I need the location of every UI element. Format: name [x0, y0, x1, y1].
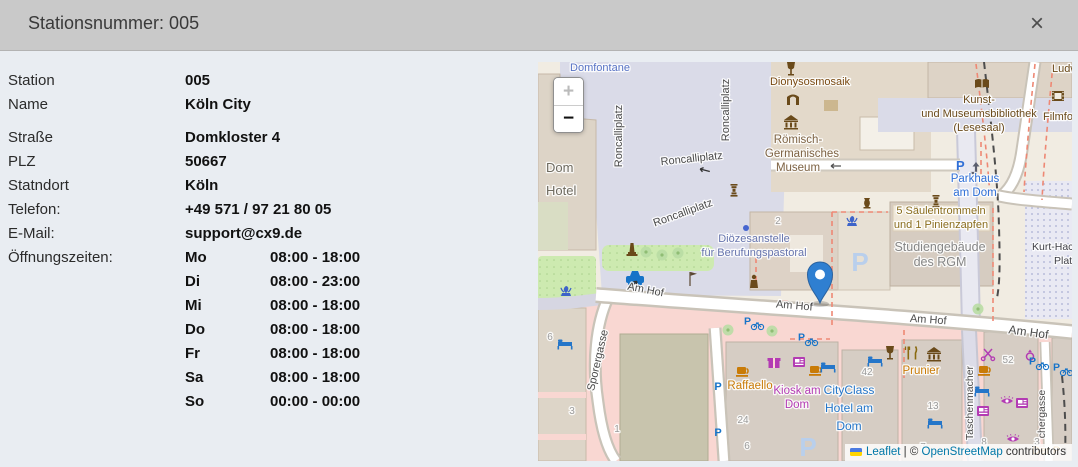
map-label: Kunst- — [963, 94, 995, 106]
detail-label: Straße — [8, 129, 185, 146]
hours-day: Fr — [185, 345, 270, 362]
detail-label: Station — [8, 72, 185, 89]
book-icon — [975, 79, 989, 88]
detail-row: PLZ 50667 — [0, 149, 532, 173]
map-label: 24 — [737, 415, 749, 426]
map-label: Studiengebäude — [894, 240, 985, 254]
opening-hours: Öffnungszeiten: Mo 08:00 - 18:00 Di 08:0… — [0, 245, 532, 413]
zoom-out-button[interactable]: − — [554, 105, 583, 132]
hours-row: So 00:00 - 00:00 — [185, 389, 360, 413]
detail-value: Köln — [185, 177, 218, 194]
map-label: Museum — [776, 162, 820, 174]
detail-value: Köln City — [185, 96, 251, 113]
map-label: Domfontane — [570, 62, 630, 74]
svg-text:P: P — [851, 247, 868, 277]
p-icon: P — [714, 427, 721, 439]
hours-time: 08:00 - 18:00 — [270, 369, 360, 386]
gift-icon — [768, 358, 781, 368]
film-icon — [1052, 91, 1064, 101]
hours-day: Mo — [185, 249, 270, 266]
map-label: Plat — [1054, 255, 1072, 267]
tree-icon — [657, 250, 668, 261]
domkloster-block — [620, 334, 708, 461]
svg-text:P: P — [1029, 356, 1036, 368]
map-zoom-control: + − — [553, 77, 584, 133]
hours-time: 08:00 - 18:00 — [270, 249, 360, 266]
detail-row: E-Mail: support@cx9.de — [0, 221, 532, 245]
map-label: des RGM — [914, 255, 967, 269]
map-canvas: PPPPPPPPP DomfontaneRoncalliplatzRoncall… — [538, 62, 1072, 461]
pbig-icon: P — [851, 247, 868, 277]
hours-day: Do — [185, 321, 270, 338]
svg-text:P: P — [714, 381, 721, 393]
map-container[interactable]: PPPPPPPPP DomfontaneRoncalliplatzRoncall… — [538, 62, 1072, 461]
dialog-title: Stationsnummer: 005 — [28, 13, 199, 34]
detail-label: Statndort — [8, 177, 185, 194]
leaflet-flag-icon — [850, 448, 862, 456]
detail-row: Straße Domkloster 4 — [0, 125, 532, 149]
detail-label: E-Mail: — [8, 225, 185, 242]
map-label: 5 Säulentrommeln — [896, 205, 985, 217]
map-label: Roncalliplatz — [720, 79, 732, 141]
p-icon: P — [714, 381, 721, 393]
hours-time: 08:00 - 23:00 — [270, 273, 360, 290]
tree-icon — [767, 326, 778, 337]
hours-time: 08:00 - 18:00 — [270, 345, 360, 362]
tree-icon — [723, 325, 734, 336]
tree-icon — [973, 304, 984, 315]
map-label: und Museumsbibliothek — [921, 108, 1037, 120]
svg-text:P: P — [956, 158, 965, 173]
map-label: Römisch- — [774, 134, 823, 146]
map-label: 1 — [614, 424, 620, 435]
close-icon[interactable]: × — [1024, 10, 1050, 38]
map-label: Dionysosmosaik — [770, 76, 851, 88]
detail-value: Domkloster 4 — [185, 129, 280, 146]
map-label: 13 — [927, 401, 939, 412]
leaflet-link[interactable]: Leaflet — [866, 446, 901, 458]
hours-row: Do 08:00 - 18:00 — [185, 317, 360, 341]
map-label: 3 — [569, 406, 575, 417]
detail-label: Telefon: — [8, 201, 185, 218]
hours-day: Mi — [185, 297, 270, 314]
map-label: 52 — [1002, 355, 1014, 366]
map-label: Taschenmacher — [964, 365, 976, 440]
map-label: Dom — [546, 160, 573, 175]
station-details-panel: Station 005 Name Köln City Straße Domklo… — [0, 68, 532, 413]
openstreetmap-link[interactable]: OpenStreetMap — [922, 446, 1003, 458]
svg-text:P: P — [799, 432, 816, 461]
hours-row: Fr 08:00 - 18:00 — [185, 341, 360, 365]
hours-day: Di — [185, 273, 270, 290]
news-icon — [1016, 398, 1028, 408]
map-label: für Berufungspastoral — [701, 247, 806, 259]
map-label: Roncalliplatz — [613, 105, 625, 167]
dot-icon — [743, 225, 749, 231]
map-label: CityClass — [824, 383, 875, 397]
detail-value: 005 — [185, 72, 210, 89]
map-label: chergasse — [1036, 390, 1048, 439]
detail-row: Station 005 — [0, 68, 532, 92]
news-icon — [793, 357, 805, 367]
dialog-header: Stationsnummer: 005 × — [0, 0, 1078, 51]
detail-label: PLZ — [8, 153, 185, 170]
pbig-icon: P — [799, 432, 816, 461]
detail-value: support@cx9.de — [185, 225, 302, 242]
hours-row: Mo 08:00 - 18:00 — [185, 245, 360, 269]
map-label: (Lesesaal) — [953, 122, 1004, 134]
hours-time: 00:00 - 00:00 — [270, 393, 360, 410]
hours-label: Öffnungszeiten: — [8, 245, 185, 269]
map-label: Diözesanstelle — [718, 233, 790, 245]
hours-day: Sa — [185, 369, 270, 386]
hours-row: Sa 08:00 - 18:00 — [185, 365, 360, 389]
building-block — [726, 342, 838, 461]
tree-icon — [673, 248, 684, 259]
map-label: 6 — [547, 332, 553, 343]
svg-text:P: P — [714, 427, 721, 439]
map-label: Prunier — [902, 365, 939, 377]
detail-value: 50667 — [185, 153, 227, 170]
svg-text:P: P — [744, 316, 751, 328]
detail-row: Name Köln City — [0, 92, 532, 116]
map-label: Kurt-Hack — [1032, 241, 1072, 253]
hours-row: Mi 08:00 - 18:00 — [185, 293, 360, 317]
svg-text:P: P — [1053, 362, 1060, 374]
map-label: Filmfo — [1043, 111, 1072, 123]
hours-time: 08:00 - 18:00 — [270, 321, 360, 338]
hours-row: Di 08:00 - 23:00 — [185, 269, 360, 293]
svg-text:P: P — [798, 332, 805, 344]
zoom-in-button[interactable]: + — [554, 78, 583, 105]
map-label: Ludw — [1052, 63, 1072, 75]
map-label: 42 — [861, 367, 873, 378]
detail-value: +49 571 / 97 21 80 05 — [185, 201, 331, 218]
map-label: Hotel am — [825, 401, 873, 415]
map-label: Dom — [836, 419, 861, 433]
map-label: am Dom — [953, 187, 996, 199]
attribution-suffix: contributors — [1003, 446, 1066, 458]
map-attribution: Leaflet | © OpenStreetMap contributors — [845, 444, 1072, 461]
map-label: Kiosk am — [773, 385, 820, 397]
map-label: Parkhaus — [951, 173, 1000, 185]
building-block — [1052, 338, 1072, 461]
hours-day: So — [185, 393, 270, 410]
hours-time: 08:00 - 18:00 — [270, 297, 360, 314]
map-label: 2 — [775, 216, 781, 227]
news-icon — [977, 406, 989, 416]
map-label: Dom — [785, 399, 809, 411]
detail-row: Statndort Köln — [0, 173, 532, 197]
map-label: Germanisches — [765, 148, 839, 160]
map-label: Hotel — [546, 183, 576, 198]
tree-icon — [641, 247, 652, 258]
detail-row: Telefon: +49 571 / 97 21 80 05 — [0, 197, 532, 221]
detail-label: Name — [8, 96, 185, 113]
map-label: 6 — [744, 441, 750, 452]
map-label: Raffaello — [727, 380, 772, 392]
attribution-separator: | © — [900, 446, 921, 458]
map-label: und 1 Pinienzapfen — [894, 219, 988, 231]
